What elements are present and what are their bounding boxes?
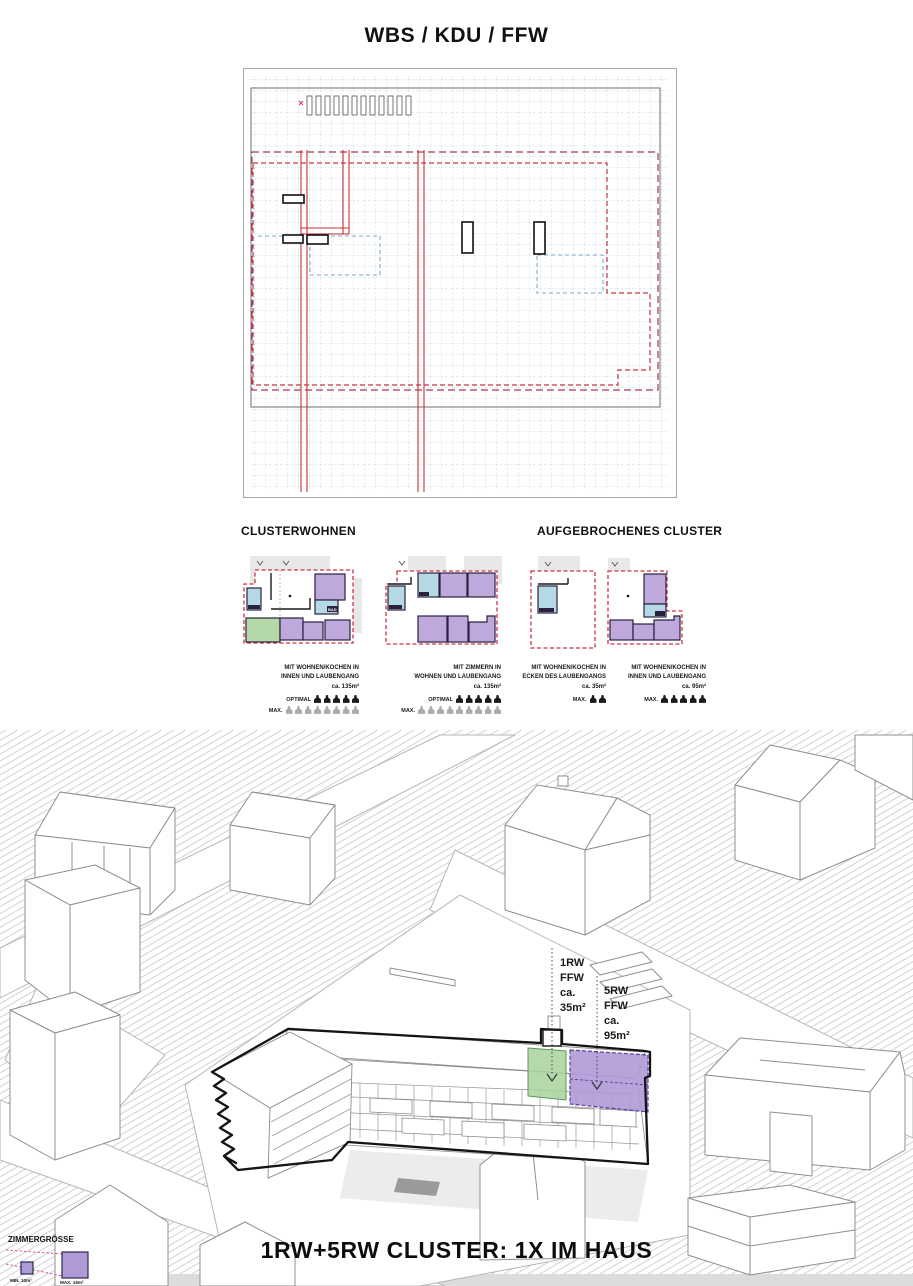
- person-icon: [295, 706, 302, 714]
- person-icons: [456, 695, 501, 703]
- occupancy-label: MAX.: [644, 697, 658, 703]
- person-icon: [343, 706, 350, 714]
- bath-fixture: [389, 605, 402, 609]
- room-purple: [468, 573, 495, 597]
- cluster-diagram-1: BAD: [238, 556, 365, 660]
- occupancy-label: OPTIMAL: [286, 697, 311, 703]
- bad-label-bar: [419, 592, 429, 596]
- occupancy-row: MAX.: [380, 706, 501, 714]
- occupancy-label: MAX.: [573, 697, 587, 703]
- person-icon: [485, 706, 492, 714]
- occupancy-label: MAX.: [401, 708, 415, 714]
- person-icon: [475, 706, 482, 714]
- room-purple: [654, 616, 680, 640]
- person-icons: [418, 706, 501, 714]
- occupancy-row: MAX.: [516, 695, 606, 703]
- person-icon: [456, 706, 463, 714]
- person-icon: [352, 706, 359, 714]
- person-icons: [286, 706, 360, 714]
- occupancy-label: MAX.: [269, 708, 283, 714]
- north-arrow-icon: [399, 561, 405, 565]
- unit-5rw-highlight: [570, 1050, 648, 1112]
- bath-fixture: [248, 605, 260, 609]
- bad-label-bar: [655, 611, 665, 616]
- person-icon: [447, 706, 454, 714]
- room-green: [246, 618, 280, 642]
- roof-bulkhead: [548, 1016, 560, 1029]
- person-icons: [314, 695, 359, 703]
- occupancy-row: OPTIMAL: [380, 695, 501, 703]
- column-dot: [627, 595, 630, 598]
- building-face: [55, 1015, 120, 1160]
- person-icon: [671, 695, 678, 703]
- person-icon: [485, 695, 492, 703]
- building-annex: [770, 1112, 812, 1176]
- person-icon: [324, 695, 331, 703]
- person-icon: [661, 695, 668, 703]
- cluster-diagram-2: [380, 556, 507, 660]
- bad-label: BAD: [328, 607, 337, 612]
- person-icon: [690, 695, 697, 703]
- person-icon: [466, 695, 473, 703]
- annotation-5rw: 95m²: [604, 1030, 630, 1042]
- floor-plan-drawing: [243, 68, 677, 498]
- legend-min-label: MIN. 10m²: [10, 1278, 32, 1283]
- cluster-caption-2: MIT ZIMMERN IN WOHNEN UND LAUBENGANG ca.…: [380, 664, 501, 714]
- occupancy-label: OPTIMAL: [428, 697, 453, 703]
- axonometric-scene: 1RW FFW ca. 35m² 5RW FFW ca. 95m²: [0, 730, 913, 1286]
- bath-fixture: [539, 608, 554, 612]
- occupancy-row: MAX.: [604, 695, 706, 703]
- heading-aufgebrochenes-cluster: AUFGEBROCHENES CLUSTER: [537, 524, 722, 538]
- cluster-caption-3: MIT WOHNEN/KOCHEN IN ECKEN DES LAUBENGAN…: [516, 664, 606, 703]
- person-icon: [466, 706, 473, 714]
- annotation-5rw: 5RW: [604, 985, 629, 997]
- person-icon: [437, 706, 444, 714]
- building-face: [10, 1010, 55, 1160]
- annotation-5rw: FFW: [604, 1000, 628, 1012]
- caption-area: ca. 35m²: [516, 683, 606, 692]
- person-icon: [305, 706, 312, 714]
- caption-area: ca. 135m²: [380, 683, 501, 692]
- room-purple: [315, 574, 345, 600]
- person-icon: [456, 695, 463, 703]
- column-dot: [289, 595, 292, 598]
- annotation-1rw: 1RW: [560, 957, 585, 969]
- person-icons: [661, 695, 706, 703]
- occupancy-row: MAX.: [238, 706, 359, 714]
- caption-line: WOHNEN UND LAUBENGANG: [380, 673, 501, 682]
- person-icon: [333, 706, 340, 714]
- person-icon: [699, 695, 706, 703]
- chimney: [558, 776, 568, 786]
- caption-line: INNEN UND LAUBENGANG: [238, 673, 359, 682]
- caption-line: ECKEN DES LAUBENGANGS: [516, 673, 606, 682]
- plan-grid: [251, 76, 669, 490]
- room-purple: [633, 624, 654, 640]
- caption-line: MIT ZIMMERN IN: [380, 664, 501, 673]
- occupancy-row: OPTIMAL: [238, 695, 359, 703]
- caption-line: MIT WOHNEN/KOCHEN IN: [238, 664, 359, 673]
- room-purple: [644, 574, 666, 604]
- person-icon: [343, 695, 350, 703]
- heading-clusterwohnen: CLUSTERWOHNEN: [241, 524, 356, 538]
- room-purple: [303, 622, 323, 640]
- room-purple: [325, 620, 350, 640]
- annotation-5rw: ca.: [604, 1015, 619, 1027]
- page-title: WBS / KDU / FFW: [0, 24, 913, 48]
- legend-max-label: MAX. 16m²: [60, 1280, 84, 1285]
- cluster-caption-4: MIT WOHNEN/KOCHEN IN INNEN UND LAUBENGAN…: [604, 664, 706, 703]
- room-purple: [610, 620, 633, 640]
- person-icon: [314, 706, 321, 714]
- caption-line: MIT WOHNEN/KOCHEN IN: [516, 664, 606, 673]
- room-purple: [280, 618, 303, 640]
- person-icon: [590, 695, 597, 703]
- caption-line: MIT WOHNEN/KOCHEN IN: [604, 664, 706, 673]
- cluster-diagram-4: [600, 556, 710, 660]
- room-purple: [448, 616, 468, 642]
- annotation-1rw: FFW: [560, 972, 584, 984]
- cluster-caption-1: MIT WOHNEN/KOCHEN IN INNEN UND LAUBENGAN…: [238, 664, 359, 714]
- person-icon: [418, 706, 425, 714]
- person-icon: [314, 695, 321, 703]
- caption-line: INNEN UND LAUBENGANG: [604, 673, 706, 682]
- person-icon: [475, 695, 482, 703]
- person-icon: [286, 706, 293, 714]
- annotation-1rw: ca.: [560, 987, 575, 999]
- person-icon: [333, 695, 340, 703]
- person-icon: [680, 695, 687, 703]
- footer-title: 1RW+5RW CLUSTER: 1X IM HAUS: [0, 1237, 913, 1264]
- person-icon: [324, 706, 331, 714]
- annotation-1rw: 35m²: [560, 1002, 586, 1014]
- person-icon: [352, 695, 359, 703]
- room-purple: [418, 616, 447, 642]
- room-purple: [440, 573, 467, 597]
- person-icon: [494, 706, 501, 714]
- caption-area: ca. 95m²: [604, 683, 706, 692]
- person-icon: [494, 695, 501, 703]
- floor-plan-panel: [243, 68, 677, 498]
- caption-area: ca. 135m²: [238, 683, 359, 692]
- person-icon: [428, 706, 435, 714]
